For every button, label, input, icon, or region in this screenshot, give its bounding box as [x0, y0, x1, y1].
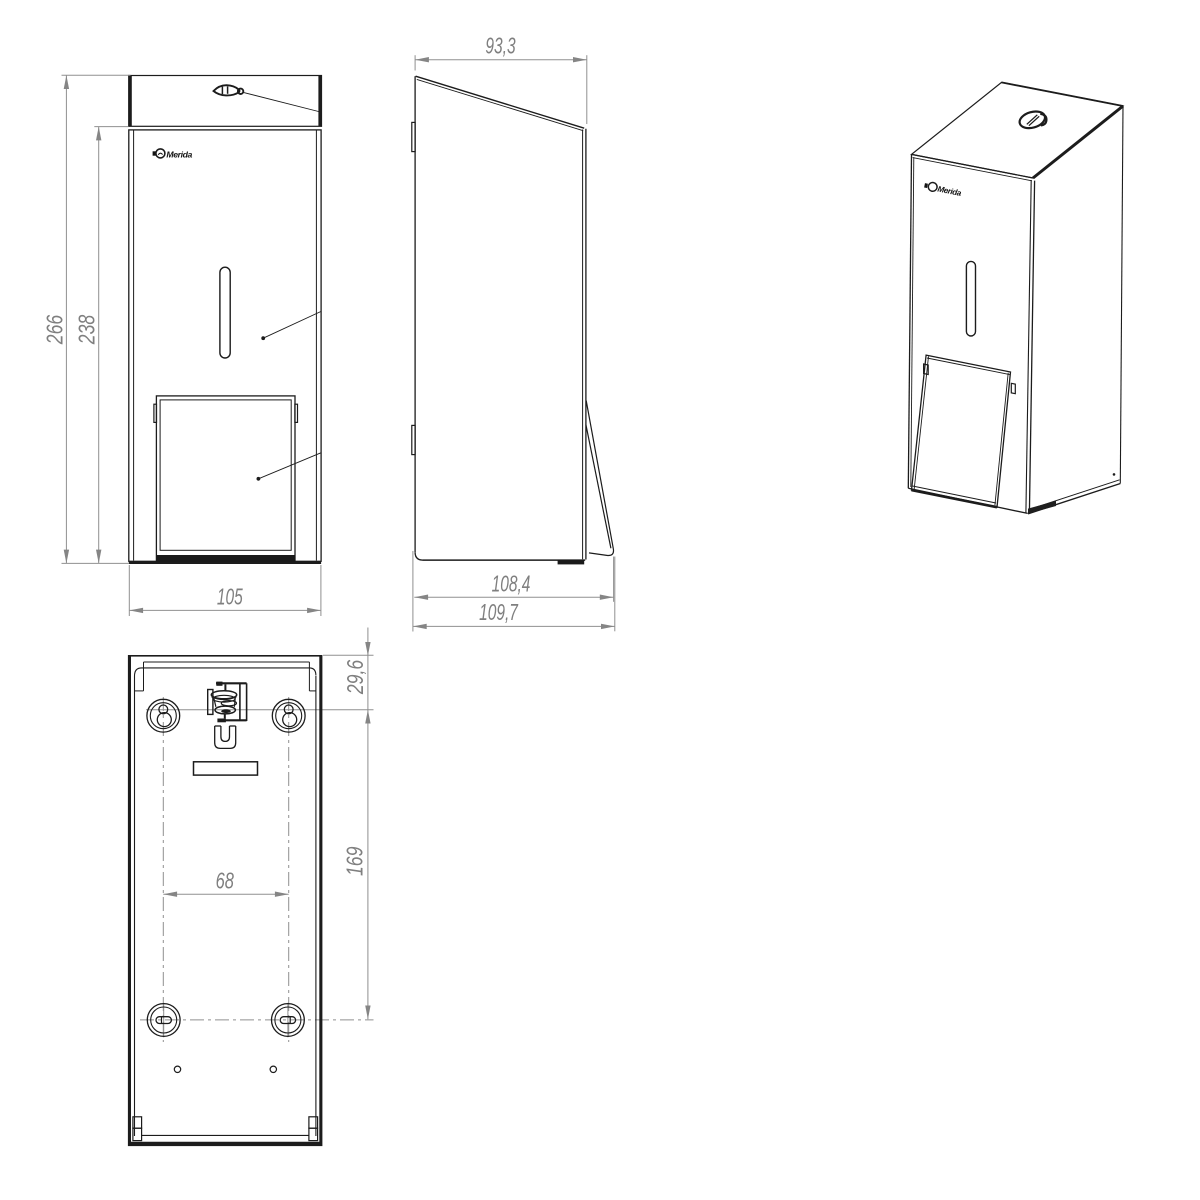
- svg-text:Merida: Merida: [166, 149, 192, 159]
- svg-text:105: 105: [217, 584, 244, 610]
- svg-text:108,4: 108,4: [492, 571, 531, 597]
- svg-text:93,3: 93,3: [485, 34, 515, 60]
- svg-text:266: 266: [42, 314, 68, 345]
- svg-text:109,7: 109,7: [479, 600, 519, 626]
- svg-text:29,6: 29,6: [343, 659, 369, 695]
- svg-text:238: 238: [74, 314, 100, 345]
- svg-text:68: 68: [216, 869, 235, 894]
- svg-text:169: 169: [342, 846, 368, 876]
